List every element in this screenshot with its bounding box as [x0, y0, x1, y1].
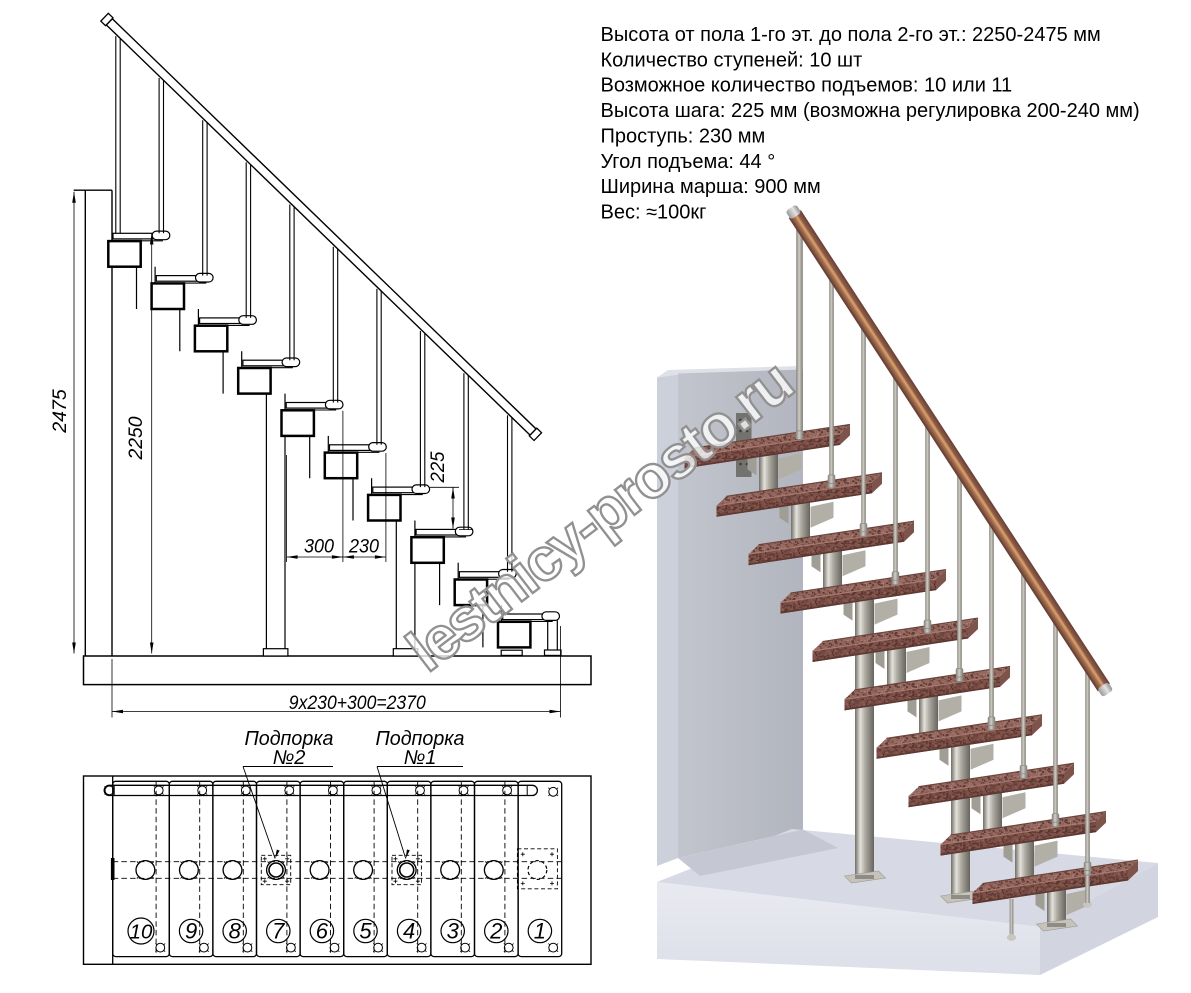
svg-text:9x230+300=2370: 9x230+300=2370 [289, 692, 426, 714]
svg-text:Возможное количество подъемов:: Возможное количество подъемов: 10 или 11 [601, 75, 1013, 97]
svg-text:4: 4 [403, 919, 415, 944]
svg-text:Высота от пола 1-го эт. до пол: Высота от пола 1-го эт. до пола 2-го эт.… [601, 24, 1101, 46]
svg-text:2: 2 [489, 919, 502, 944]
svg-text:Высота шага: 225 мм (возможна: Высота шага: 225 мм (возможна регулировк… [601, 100, 1140, 122]
svg-text:300: 300 [304, 536, 334, 558]
svg-text:2250: 2250 [125, 416, 147, 460]
svg-text:225: 225 [427, 451, 449, 483]
svg-text:№1: №1 [404, 747, 437, 769]
svg-text:5: 5 [359, 919, 372, 944]
svg-text:6: 6 [316, 919, 329, 944]
svg-text:Ширина марша: 900 мм: Ширина марша: 900 мм [601, 176, 821, 198]
svg-text:230: 230 [348, 536, 379, 558]
svg-text:7: 7 [272, 919, 285, 944]
svg-text:8: 8 [229, 919, 242, 944]
svg-text:10: 10 [130, 921, 153, 944]
svg-text:Количество ступеней: 10 шт: Количество ступеней: 10 шт [601, 49, 863, 71]
svg-text:№2: №2 [273, 747, 306, 769]
svg-text:2475: 2475 [49, 389, 71, 434]
svg-text:9: 9 [185, 919, 197, 944]
svg-text:Проступь: 230 мм: Проступь: 230 мм [601, 125, 766, 147]
svg-text:Угол подъема: 44 °: Угол подъема: 44 ° [601, 151, 776, 173]
svg-text:1: 1 [534, 919, 546, 944]
svg-text:Вес: ≈100кг: Вес: ≈100кг [601, 202, 707, 224]
svg-text:3: 3 [447, 919, 460, 944]
